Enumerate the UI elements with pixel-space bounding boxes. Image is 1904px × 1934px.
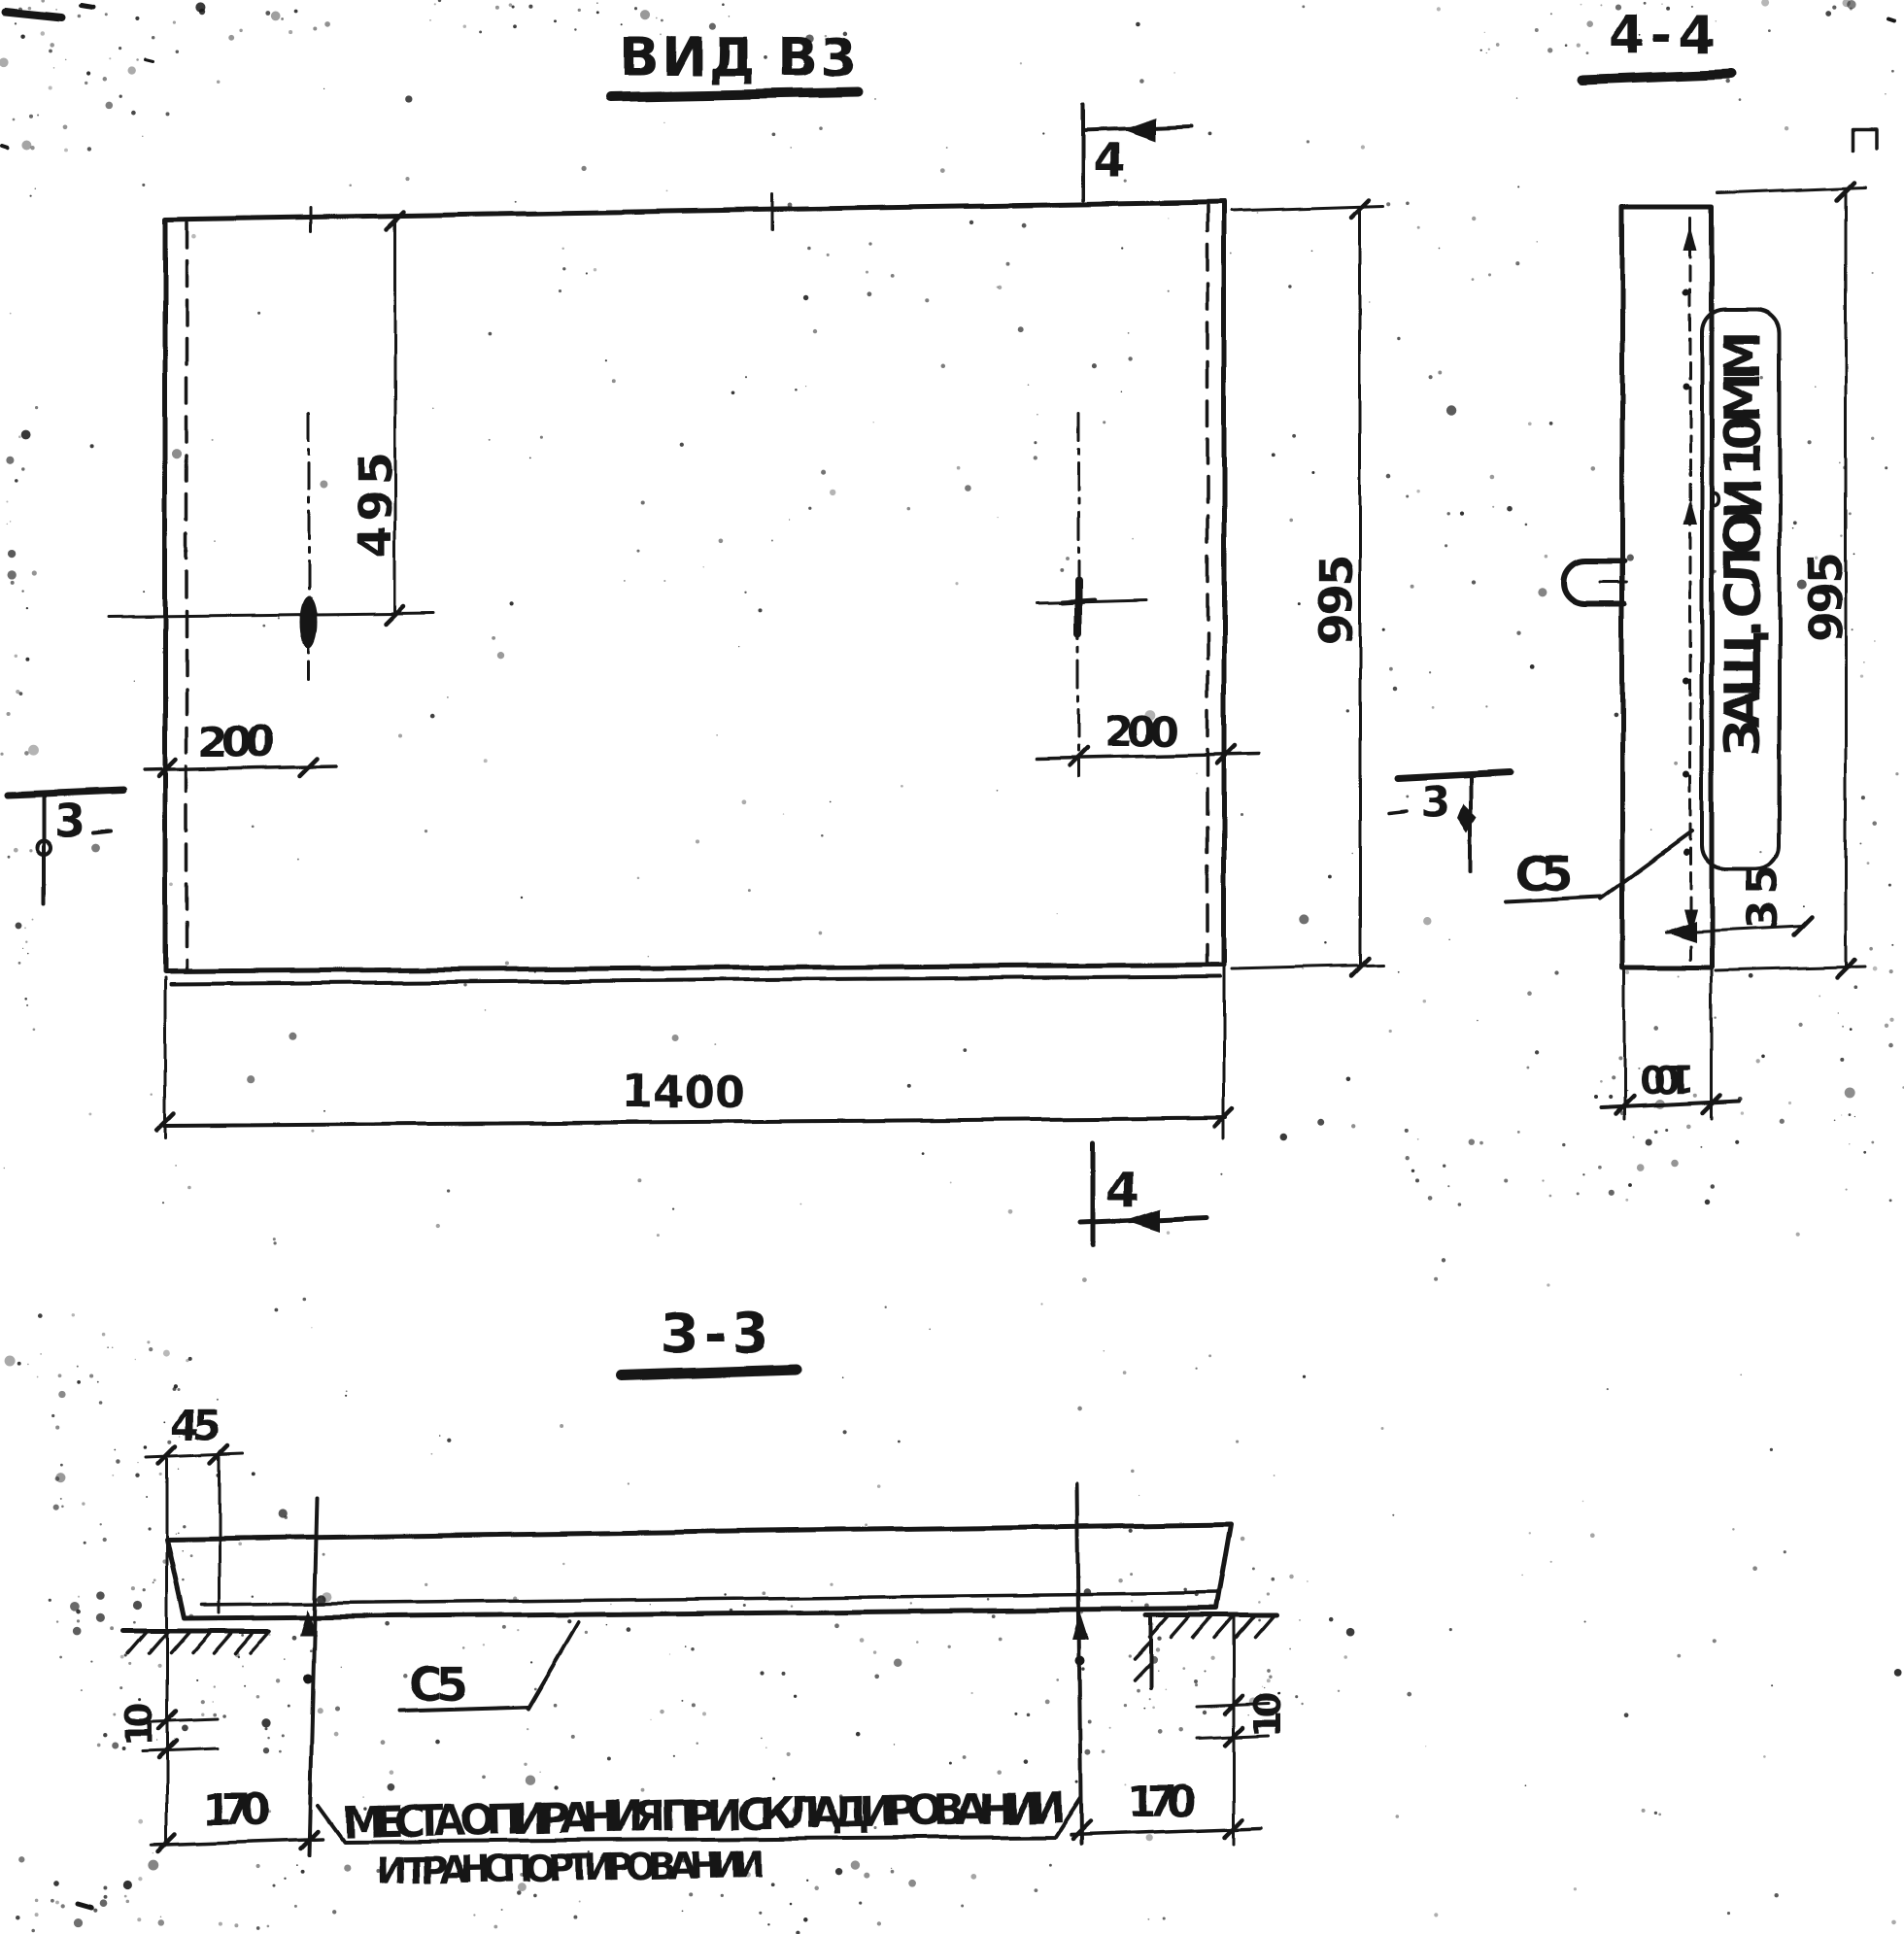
- scan-mark: [1853, 130, 1877, 151]
- section-3-3-title: 3-3: [622, 1303, 797, 1375]
- dim-45: 45: [146, 1402, 243, 1842]
- section-4-4: 4-4 ЗАЩ. СЛОЙ 10ММ: [1389, 4, 1877, 1119]
- panel-section-outline: [1622, 207, 1712, 967]
- c5-leader: [1601, 831, 1692, 899]
- c5-label: С5: [1515, 847, 1574, 901]
- rebar-dot: [1683, 290, 1690, 297]
- dim-line: [142, 1748, 218, 1751]
- dim-35-label: 35: [1739, 865, 1788, 930]
- marker-dash: [93, 831, 111, 832]
- dim-10-right: 10: [1197, 1692, 1289, 1745]
- dim-495: 495: [349, 212, 404, 624]
- section-3-3-title-text: 3-3: [661, 1303, 769, 1366]
- lifting-loop: [1564, 561, 1626, 604]
- blueprint-canvas: ВИД В3 495: [0, 0, 1904, 1934]
- dim-170-right: 170: [1071, 1614, 1261, 1844]
- dim-995-label: 995: [1799, 551, 1853, 643]
- support-leader-left: [300, 1498, 318, 1855]
- lifting-anchor-cross: [1062, 600, 1095, 602]
- leader-dot: [1075, 1656, 1085, 1666]
- marker-dash: [1389, 811, 1407, 813]
- panel-plan-inner-edge: [202, 1593, 1217, 1605]
- dim-45-line: [146, 1453, 243, 1457]
- panel-bottom-edge-double: [171, 976, 1220, 984]
- dim-100: 100: [1601, 970, 1739, 1119]
- section-marker-4-top: 4: [1083, 105, 1191, 200]
- dim-line: [152, 1839, 323, 1845]
- rebar-dot: [1683, 850, 1690, 857]
- rebar-mesh: [1683, 218, 1698, 960]
- section-marker-3-left: 3: [8, 791, 122, 903]
- dim-170-left: 170: [152, 1785, 323, 1851]
- dim-200-left-label: 200: [198, 718, 274, 767]
- marker-4-label: 4: [1094, 134, 1126, 188]
- dim-995-label: 995: [1309, 554, 1364, 646]
- dim-10-left-label: 10: [118, 1702, 160, 1747]
- marker-3-label: 3: [54, 795, 85, 847]
- dim-995-b3: 995: [1232, 200, 1383, 975]
- dim-45-label: 45: [171, 1402, 221, 1449]
- support-block-right: [1135, 1615, 1276, 1688]
- dim-200-right-label: 200: [1104, 707, 1179, 757]
- view-b3: ВИД В3 495: [8, 27, 1383, 1245]
- section-4-4-title-text: 4-4: [1609, 4, 1716, 65]
- support-note-line2: И ТРАНСПОРТИРОВАНИИ: [376, 1843, 765, 1892]
- dim-arrowhead: [1663, 921, 1696, 942]
- rebar-arrow: [1683, 225, 1697, 251]
- section-4-4-title-underline: [1581, 74, 1731, 80]
- dim-35: 35: [1663, 865, 1812, 942]
- scan-artifacts: [2, 6, 1894, 1908]
- section-3-3: 3-3: [118, 1303, 1289, 1892]
- rebar-dot: [1683, 384, 1690, 390]
- drawing-sheet: ВИД В3 495: [0, 0, 1904, 1934]
- view-b3-title-underline: [610, 92, 859, 97]
- dim-1400-line: [163, 1118, 1226, 1126]
- leader-arrowhead: [1072, 1612, 1089, 1640]
- section-4-4-title: 4-4: [1581, 4, 1731, 80]
- marker-dot: [1457, 804, 1477, 833]
- lifting-anchor-icon: [300, 596, 318, 647]
- marker-3-label: 3: [1420, 778, 1450, 828]
- c5-label: С5: [408, 1657, 468, 1712]
- dim-1400: 1400: [156, 967, 1233, 1138]
- c5-leader: [528, 1622, 579, 1709]
- panel-outline: [165, 202, 1224, 971]
- rebar-dot: [1683, 677, 1690, 684]
- anchor-axis-line: [109, 613, 434, 617]
- support-note: МЕСТА ОПИРАНИЯ ПРИ СКЛАДИРОВАНИИ И ТРАНС…: [318, 1783, 1080, 1892]
- dim-495-label: 495: [349, 452, 403, 559]
- rebar-arrow: [1683, 499, 1697, 525]
- dim-100-label: 100: [1639, 1056, 1695, 1101]
- dim-170-left-label: 170: [202, 1785, 270, 1835]
- section-3-3-title-underline: [622, 1370, 797, 1375]
- section-marker-4-bottom: 4: [1080, 1142, 1207, 1245]
- rebar-dot: [1683, 771, 1690, 778]
- dim-1400-label: 1400: [622, 1066, 746, 1118]
- protective-layer-note: ЗАЩ. СЛОЙ 10ММ: [1714, 330, 1773, 756]
- dim-170-right-label: 170: [1127, 1778, 1197, 1827]
- section-marker-3-44: 3: [1389, 772, 1510, 871]
- mesh-label-c5-33: С5: [400, 1622, 579, 1712]
- support-leader-right: [1072, 1484, 1089, 1844]
- marker-4-label: 4: [1105, 1162, 1139, 1218]
- mesh-label-c5-44: С5: [1506, 831, 1692, 901]
- marker-line: [1397, 772, 1510, 778]
- marker-arrowhead: [1123, 118, 1156, 141]
- support-block-left: [124, 1631, 270, 1653]
- leader-dot: [303, 1674, 313, 1683]
- view-b3-title: ВИД В3: [610, 27, 863, 97]
- dim-200-left: 200: [144, 718, 336, 777]
